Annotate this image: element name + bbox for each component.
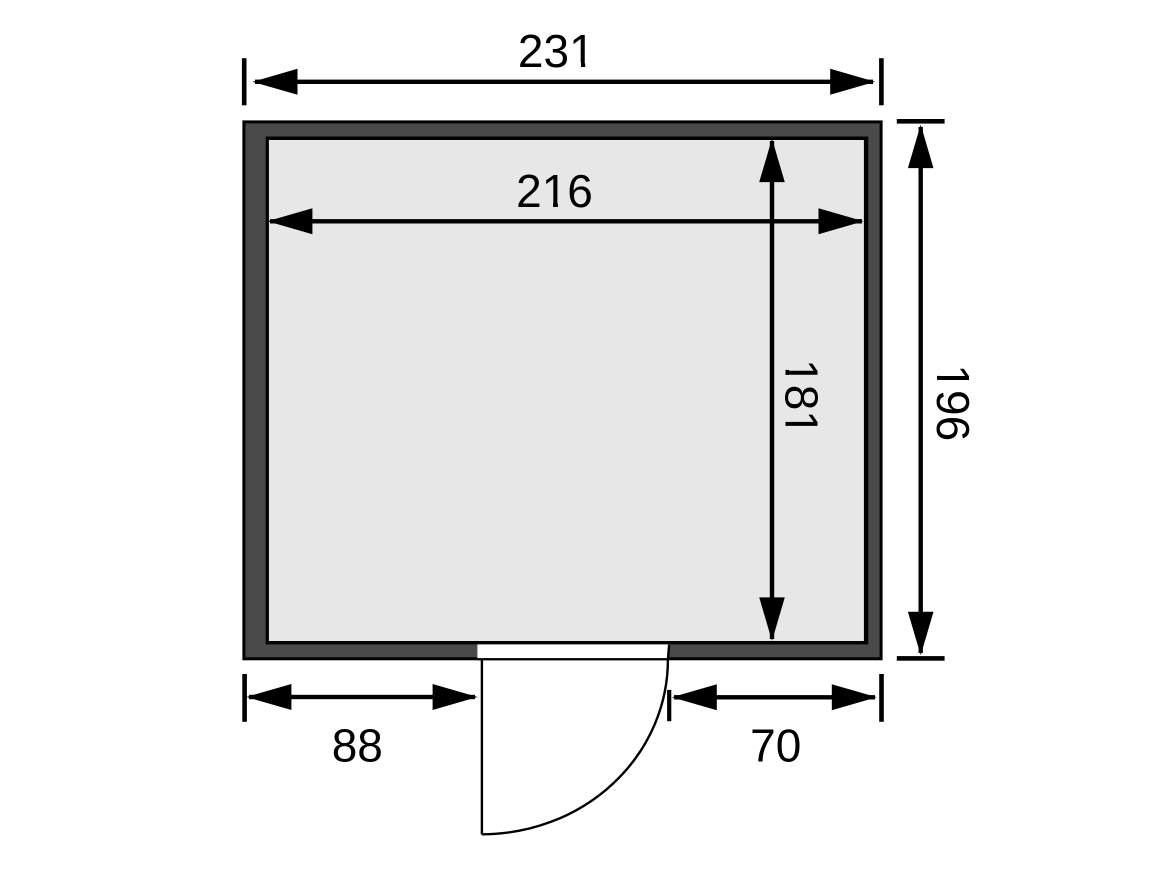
svg-text:196: 196: [927, 364, 979, 441]
svg-text:216: 216: [516, 165, 593, 217]
svg-text:70: 70: [750, 720, 801, 772]
svg-text:88: 88: [332, 720, 383, 772]
svg-text:181: 181: [776, 359, 828, 436]
svg-text:231: 231: [518, 25, 595, 77]
